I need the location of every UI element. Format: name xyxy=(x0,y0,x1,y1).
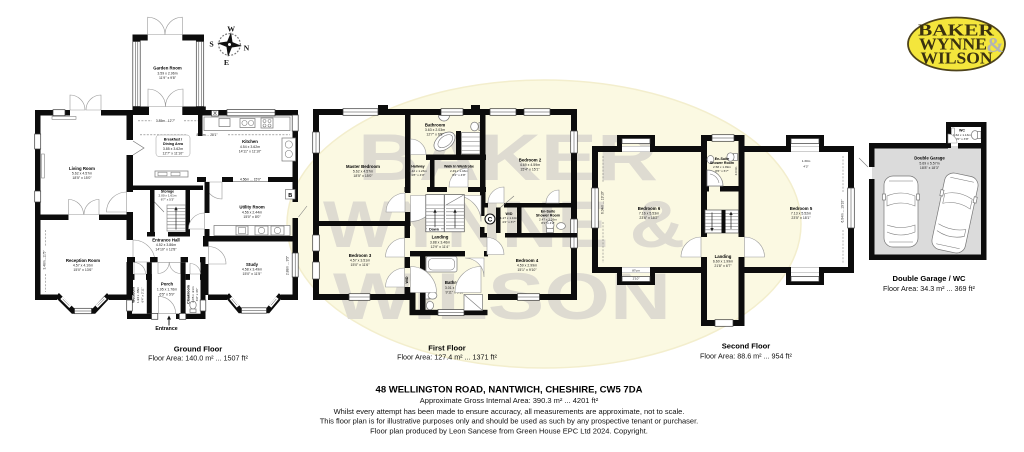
svg-text:23'6" x 18'2": 23'6" x 18'2" xyxy=(639,216,659,220)
svg-text:12'7" x 6'8": 12'7" x 6'8" xyxy=(426,133,444,137)
svg-text:6'9" x 3'0": 6'9" x 3'0" xyxy=(195,288,199,302)
svg-text:Double Garage: Double Garage xyxy=(914,156,945,161)
svg-text:4.56 x 2.44m: 4.56 x 2.44m xyxy=(242,210,262,214)
svg-text:15'0" x 13'6": 15'0" x 13'6" xyxy=(73,268,93,272)
svg-text:Breakfast /: Breakfast / xyxy=(164,137,182,141)
svg-text:18'5" x 15'0": 18'5" x 15'0" xyxy=(353,174,373,178)
svg-text:11'9" x 9'8": 11'9" x 9'8" xyxy=(159,76,177,80)
svg-text:4.69 x 4.59m: 4.69 x 4.59m xyxy=(520,163,540,167)
svg-text:Floor Area: 88.6 m² ... 954 ft: Floor Area: 88.6 m² ... 954 ft² xyxy=(700,352,792,361)
svg-text:4.57 x 4.10m: 4.57 x 4.10m xyxy=(73,264,93,268)
svg-text:15'0" x 11'5": 15'0" x 11'5" xyxy=(243,272,263,276)
svg-text:6.60 x 1.99m: 6.60 x 1.99m xyxy=(713,259,733,263)
svg-text:WILSON: WILSON xyxy=(921,49,993,68)
svg-text:Approximate Gross Internal Are: Approximate Gross Internal Area: 390.3 m… xyxy=(420,396,599,405)
svg-text:Bedroom 2: Bedroom 2 xyxy=(519,157,542,162)
svg-text:6'4" x 2'11": 6'4" x 2'11" xyxy=(140,287,144,302)
svg-text:3.88 x 3.46m: 3.88 x 3.46m xyxy=(430,240,450,244)
svg-text:WC: WC xyxy=(959,128,965,132)
svg-text:48 WELLINGTON ROAD, NANTWICH,: 48 WELLINGTON ROAD, NANTWICH, CHESHIRE, … xyxy=(376,385,643,396)
svg-text:4'2" x 3'7": 4'2" x 3'7" xyxy=(502,220,516,224)
svg-text:4.52 x 3.86m: 4.52 x 3.86m xyxy=(156,243,176,247)
svg-text:8'1" x 4'2": 8'1" x 4'2" xyxy=(541,221,555,225)
svg-text:Landing: Landing xyxy=(715,254,732,259)
svg-text:Floor Area: 140.0 m² ... 1507: Floor Area: 140.0 m² ... 1507 ft² xyxy=(148,354,248,363)
svg-text:Landing: Landing xyxy=(432,235,449,240)
svg-text:Floor Area: 127.4 m² ... 1371: Floor Area: 127.4 m² ... 1371 ft² xyxy=(397,353,497,362)
svg-text:4.59 x 2.99m: 4.59 x 2.99m xyxy=(517,264,537,268)
svg-text:8'6" x 6'7": 8'6" x 6'7" xyxy=(715,169,729,173)
svg-text:This floor plan is for illustr: This floor plan is for illustrative purp… xyxy=(320,417,699,426)
svg-text:12'7" x 11'10": 12'7" x 11'10" xyxy=(163,151,185,155)
svg-text:15'1" x 9'10": 15'1" x 9'10" xyxy=(517,268,537,272)
svg-text:Floor Area: 34.3 m² ... 369 ft: Floor Area: 34.3 m² ... 369 ft² xyxy=(883,284,975,293)
svg-text:12'9" x 11'4": 12'9" x 11'4" xyxy=(431,245,451,249)
svg-text:3.63 x 2.03m: 3.63 x 2.03m xyxy=(425,128,445,132)
svg-text:Ground Floor: Ground Floor xyxy=(174,345,223,354)
svg-text:15'0" x 8'0": 15'0" x 8'0" xyxy=(243,215,261,219)
svg-text:Bedroom 3: Bedroom 3 xyxy=(349,253,372,258)
svg-text:First Floor: First Floor xyxy=(428,344,466,353)
svg-text:B: B xyxy=(288,193,292,199)
svg-text:23'5" x 18'1": 23'5" x 18'1" xyxy=(791,216,811,220)
svg-text:Study: Study xyxy=(246,262,259,267)
svg-text:Bathroom: Bathroom xyxy=(425,122,445,127)
svg-text:Porch: Porch xyxy=(161,281,174,286)
svg-text:2.04m: 2.04m xyxy=(734,166,738,175)
svg-text:6'5" x 5'9": 6'5" x 5'9" xyxy=(159,293,175,297)
svg-text:2'10": 2'10" xyxy=(633,276,640,280)
svg-text:3.85m...12'7": 3.85m...12'7" xyxy=(156,119,176,123)
svg-text:3.59 x 2.96m: 3.59 x 2.96m xyxy=(157,71,177,75)
svg-text:Reception Room: Reception Room xyxy=(66,258,100,263)
svg-text:Entrance: Entrance xyxy=(155,326,177,332)
svg-text:4.56m ... 15'0": 4.56m ... 15'0" xyxy=(240,178,262,182)
svg-text:21'8" x 6'7": 21'8" x 6'7" xyxy=(714,264,732,268)
svg-text:BAKER: BAKER xyxy=(358,120,658,194)
svg-text:4.58 x 3.49m: 4.58 x 3.49m xyxy=(242,268,262,272)
svg-text:8'2" x 4'8": 8'2" x 4'8" xyxy=(452,173,466,177)
svg-text:Whilst every attempt has been: Whilst every attempt has been made to en… xyxy=(334,407,685,416)
svg-text:1.95 x 1.76m: 1.95 x 1.76m xyxy=(157,288,177,292)
svg-text:Down: Down xyxy=(429,227,439,231)
svg-text:3.85 x 3.62m: 3.85 x 3.62m xyxy=(163,147,183,151)
svg-text:S: S xyxy=(209,40,213,49)
svg-text:15'4" x 15'1": 15'4" x 15'1" xyxy=(520,168,540,172)
svg-text:4.54 x 3.62m: 4.54 x 3.62m xyxy=(240,145,260,149)
svg-text:15'0" x 11'6": 15'0" x 11'6" xyxy=(351,263,371,267)
svg-text:4.57 x 3.51m: 4.57 x 3.51m xyxy=(350,259,370,263)
svg-text:87cm: 87cm xyxy=(632,269,640,273)
svg-text:5.62 x 4.57m: 5.62 x 4.57m xyxy=(72,172,92,176)
svg-text:C: C xyxy=(488,216,493,223)
svg-text:7.13 x 5.52m: 7.13 x 5.52m xyxy=(791,212,811,216)
svg-text:7.16 x 5.53m: 7.16 x 5.53m xyxy=(639,212,659,216)
svg-text:Wetroom: Wetroom xyxy=(132,287,136,303)
svg-text:6'0" x 3'8": 6'0" x 3'8" xyxy=(955,137,969,141)
svg-text:Utility Room: Utility Room xyxy=(239,205,264,210)
svg-text:Bedroom 5: Bedroom 5 xyxy=(790,206,813,211)
svg-text:6.04m ... 19'10": 6.04m ... 19'10" xyxy=(601,190,605,214)
svg-text:Garden Room: Garden Room xyxy=(153,66,182,71)
svg-text:14'11" x 11'10": 14'11" x 11'10" xyxy=(239,149,262,153)
svg-text:Bedroom 4: Bedroom 4 xyxy=(516,258,539,263)
svg-text:Master Bedroom: Master Bedroom xyxy=(346,164,380,169)
svg-text:1.30m: 1.30m xyxy=(802,159,811,163)
svg-text:14'10" x 12'8": 14'10" x 12'8" xyxy=(155,248,177,252)
svg-text:Hallway: Hallway xyxy=(411,165,424,169)
svg-text:Bedroom 6: Bedroom 6 xyxy=(638,206,661,211)
svg-text:4'3": 4'3" xyxy=(803,165,808,169)
svg-text:Second Floor: Second Floor xyxy=(722,341,771,350)
svg-text:W: W xyxy=(227,24,235,33)
svg-text:N: N xyxy=(244,43,250,52)
svg-text:Double Garage / WC: Double Garage / WC xyxy=(893,274,967,283)
svg-text:Kitchen: Kitchen xyxy=(242,139,258,144)
svg-text:3.48m...11'5": 3.48m...11'5" xyxy=(43,250,47,270)
svg-text:18'8" x 18'3": 18'8" x 18'3" xyxy=(920,166,940,170)
svg-text:6.04m ... 19'10": 6.04m ... 19'10" xyxy=(841,199,845,223)
svg-text:5.62 x 4.57m: 5.62 x 4.57m xyxy=(353,170,373,174)
svg-text:E: E xyxy=(224,58,229,67)
svg-text:6'7" x 5'3": 6'7" x 5'3" xyxy=(161,198,175,202)
svg-text:Dining Area: Dining Area xyxy=(163,142,184,146)
svg-text:4'8" x 4'0": 4'8" x 4'0" xyxy=(411,173,425,177)
svg-text:18'5" x 15'0": 18'5" x 15'0" xyxy=(72,176,92,180)
svg-text:5.69 x 5.57m: 5.69 x 5.57m xyxy=(919,161,939,165)
svg-text:Walk In Wardrobe: Walk In Wardrobe xyxy=(444,165,474,169)
svg-text:Living Room: Living Room xyxy=(69,166,95,171)
svg-text:Entrance Hall: Entrance Hall xyxy=(152,238,179,243)
svg-text:Floor plan produced by Leon Sa: Floor plan produced by Leon Sancese from… xyxy=(370,426,648,435)
svg-text:2.88m ... 9'5": 2.88m ... 9'5" xyxy=(286,255,290,275)
